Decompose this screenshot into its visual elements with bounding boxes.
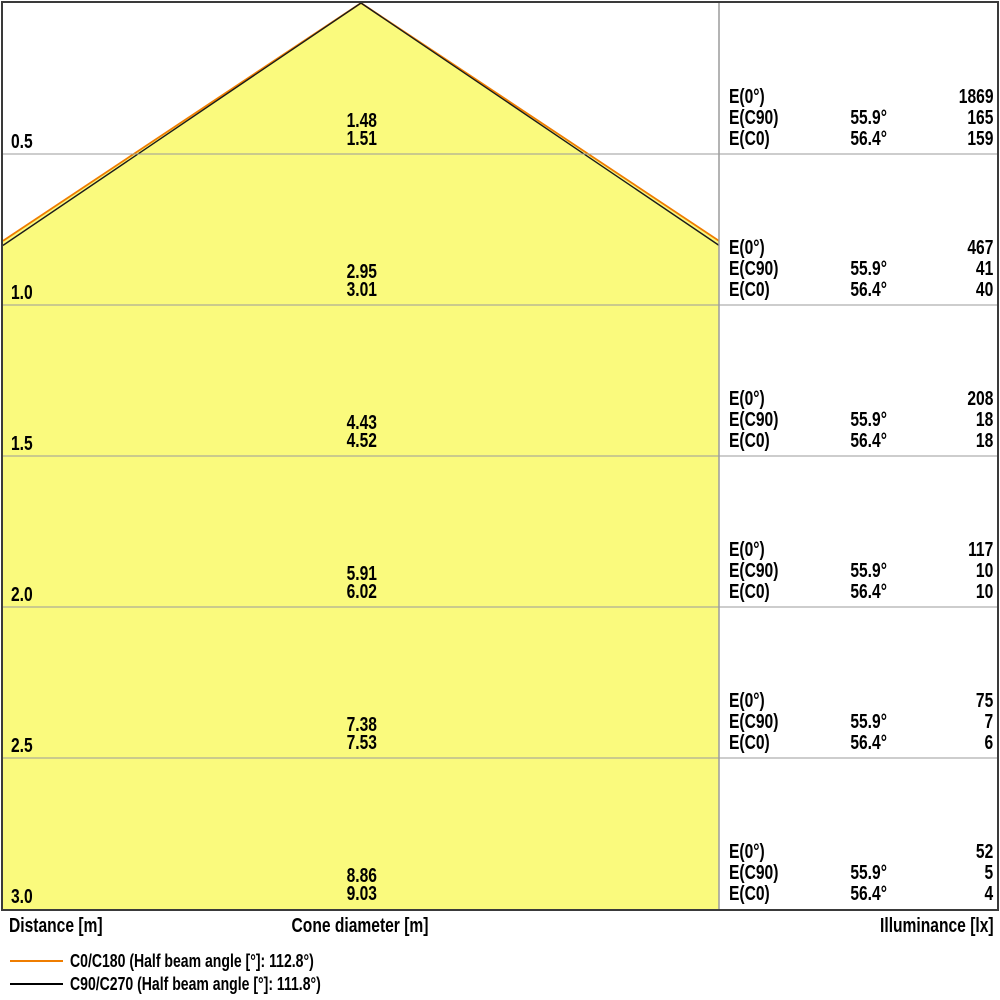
cone-diameter-c0: 7.53 bbox=[347, 734, 377, 752]
ec0-line: E(C0) 56.4° 4 bbox=[729, 884, 993, 905]
legend-line-c90-icon bbox=[10, 983, 63, 985]
e0-label: E(0°) bbox=[729, 238, 765, 259]
ec90-value: 18 bbox=[976, 410, 993, 431]
ec0-angle: 56.4° bbox=[850, 280, 887, 301]
ec90-angle: 55.9° bbox=[850, 410, 887, 431]
ec0-line: E(C0) 56.4° 10 bbox=[729, 582, 993, 603]
ec0-label: E(C0) bbox=[729, 884, 770, 905]
ec0-angle: 56.4° bbox=[850, 733, 887, 754]
ec90-label: E(C90) bbox=[729, 410, 778, 431]
e0-label: E(0°) bbox=[729, 540, 765, 561]
illuminance-block: E(0°) 117 E(C90) 55.9° 10 E(C0) 56.4° 10 bbox=[729, 540, 993, 604]
ec90-label: E(C90) bbox=[729, 561, 778, 582]
cone-diameter-c0: 4.52 bbox=[347, 432, 377, 450]
distance-label: 1.0 bbox=[11, 283, 33, 303]
cone-diameter-c0: 1.51 bbox=[347, 130, 377, 148]
ec90-value: 165 bbox=[967, 108, 993, 129]
e0-value: 52 bbox=[976, 842, 993, 863]
ec90-angle: 55.9° bbox=[850, 108, 887, 129]
ec0-label: E(C0) bbox=[729, 733, 770, 754]
ec90-value: 41 bbox=[976, 259, 993, 280]
ec0-label: E(C0) bbox=[729, 280, 770, 301]
ec90-angle: 55.9° bbox=[850, 712, 887, 733]
ec90-angle: 55.9° bbox=[850, 863, 887, 884]
illuminance-block: E(0°) 1869 E(C90) 55.9° 165 E(C0) 56.4° … bbox=[729, 87, 993, 151]
ec0-line: E(C0) 56.4° 40 bbox=[729, 280, 993, 301]
ec0-line: E(C0) 56.4° 18 bbox=[729, 431, 993, 452]
e0-line: E(0°) 467 bbox=[729, 238, 993, 259]
ec0-angle: 56.4° bbox=[850, 129, 887, 150]
e0-line: E(0°) 117 bbox=[729, 540, 993, 561]
legend-line-c0-icon bbox=[10, 960, 63, 962]
ec90-line: E(C90) 55.9° 41 bbox=[729, 259, 993, 280]
ec90-label: E(C90) bbox=[729, 259, 778, 280]
cone-diameter-values: 1.48 1.51 bbox=[347, 112, 377, 148]
ec0-line: E(C0) 56.4° 159 bbox=[729, 129, 993, 150]
cone-diameter-c0: 9.03 bbox=[347, 885, 377, 903]
e0-label: E(0°) bbox=[729, 691, 765, 712]
ec90-line: E(C90) 55.9° 5 bbox=[729, 863, 993, 884]
illuminance-block: E(0°) 208 E(C90) 55.9° 18 E(C0) 56.4° 18 bbox=[729, 389, 993, 453]
illuminance-block: E(0°) 467 E(C90) 55.9° 41 E(C0) 56.4° 40 bbox=[729, 238, 993, 302]
ec0-line: E(C0) 56.4° 6 bbox=[729, 733, 993, 754]
cone-diameter-values: 5.91 6.02 bbox=[347, 565, 377, 601]
illuminance-block: E(0°) 75 E(C90) 55.9° 7 E(C0) 56.4° 6 bbox=[729, 691, 993, 755]
cone-diameter-values: 8.86 9.03 bbox=[347, 867, 377, 903]
ec90-line: E(C90) 55.9° 7 bbox=[729, 712, 993, 733]
distance-label: 2.5 bbox=[11, 736, 33, 756]
e0-line: E(0°) 75 bbox=[729, 691, 993, 712]
cone-diameter-values: 2.95 3.01 bbox=[347, 263, 377, 299]
legend-label-c90: C90/C270 (Half beam angle [°]: 111.8°) bbox=[70, 975, 321, 993]
cone-diameter-c0: 3.01 bbox=[347, 281, 377, 299]
e0-label: E(0°) bbox=[729, 87, 765, 108]
ec0-label: E(C0) bbox=[729, 582, 770, 603]
e0-value: 75 bbox=[976, 691, 993, 712]
diagram-frame: 0.5 1.48 1.51 E(0°) 1869 E(C90) 55.9° 16… bbox=[1, 1, 999, 911]
e0-value: 467 bbox=[967, 238, 993, 259]
ec0-value: 6 bbox=[984, 733, 993, 754]
ec0-angle: 56.4° bbox=[850, 431, 887, 452]
ec90-value: 5 bbox=[984, 863, 993, 884]
distance-label: 2.0 bbox=[11, 585, 33, 605]
ec0-value: 159 bbox=[967, 129, 993, 150]
ec0-value: 40 bbox=[976, 280, 993, 301]
ec0-angle: 56.4° bbox=[850, 582, 887, 603]
ec0-value: 4 bbox=[984, 884, 993, 905]
cone-diameter-axis-label: Cone diameter [m] bbox=[79, 916, 641, 936]
illuminance-axis-label: Illuminance [lx] bbox=[880, 916, 994, 936]
ec90-angle: 55.9° bbox=[850, 259, 887, 280]
e0-value: 1869 bbox=[958, 87, 993, 108]
light-cone-diagram: 0.5 1.48 1.51 E(0°) 1869 E(C90) 55.9° 16… bbox=[0, 0, 1000, 1000]
e0-value: 117 bbox=[968, 540, 993, 561]
ec90-angle: 55.9° bbox=[850, 561, 887, 582]
ec90-value: 7 bbox=[984, 712, 993, 733]
ec90-label: E(C90) bbox=[729, 712, 778, 733]
distance-label: 1.5 bbox=[11, 434, 33, 454]
ec90-label: E(C90) bbox=[729, 108, 778, 129]
ec90-line: E(C90) 55.9° 10 bbox=[729, 561, 993, 582]
ec0-label: E(C0) bbox=[729, 129, 770, 150]
cone-diameter-c0: 6.02 bbox=[347, 583, 377, 601]
e0-value: 208 bbox=[967, 389, 993, 410]
e0-line: E(0°) 208 bbox=[729, 389, 993, 410]
distance-label: 3.0 bbox=[11, 887, 33, 907]
distance-label: 0.5 bbox=[11, 132, 33, 152]
ec0-value: 18 bbox=[976, 431, 993, 452]
cone-diameter-values: 7.38 7.53 bbox=[347, 716, 377, 752]
e0-label: E(0°) bbox=[729, 389, 765, 410]
ec90-label: E(C90) bbox=[729, 863, 778, 884]
ec90-value: 10 bbox=[976, 561, 993, 582]
ec90-line: E(C90) 55.9° 18 bbox=[729, 410, 993, 431]
e0-line: E(0°) 52 bbox=[729, 842, 993, 863]
legend-label-c0: C0/C180 (Half beam angle [°]: 112.8°) bbox=[70, 952, 314, 970]
cone-diameter-values: 4.43 4.52 bbox=[347, 414, 377, 450]
ec90-line: E(C90) 55.9° 165 bbox=[729, 108, 993, 129]
ec0-value: 10 bbox=[976, 582, 993, 603]
illuminance-block: E(0°) 52 E(C90) 55.9° 5 E(C0) 56.4° 4 bbox=[729, 842, 993, 906]
ec0-label: E(C0) bbox=[729, 431, 770, 452]
e0-line: E(0°) 1869 bbox=[729, 87, 993, 108]
e0-label: E(0°) bbox=[729, 842, 765, 863]
ec0-angle: 56.4° bbox=[850, 884, 887, 905]
